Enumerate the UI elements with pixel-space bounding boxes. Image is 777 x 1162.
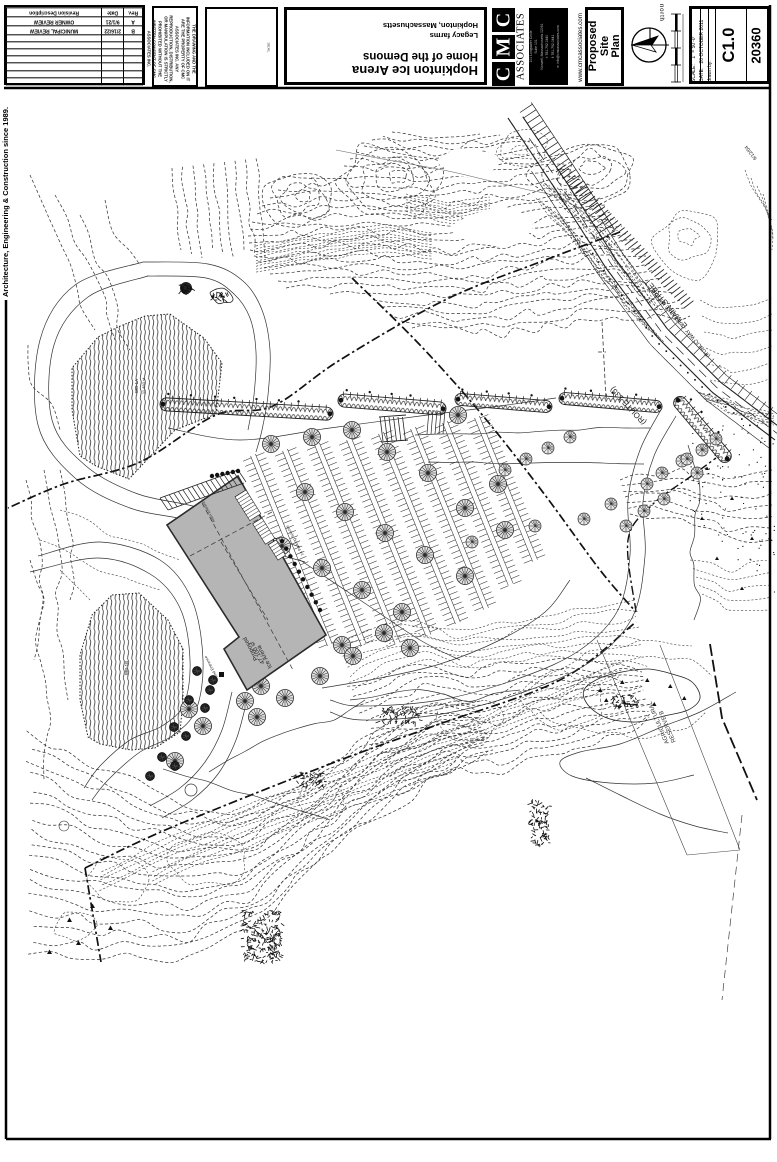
svg-text:WB-1B: WB-1B (124, 661, 129, 675)
svg-text:WB-1A: WB-1A (134, 379, 139, 393)
svg-text:6/12/04: 6/12/04 (744, 144, 759, 161)
svg-text:2nd Entrance: 2nd Entrance (203, 654, 219, 678)
svg-text:11,450 sf: 11,450 sf (141, 377, 146, 394)
